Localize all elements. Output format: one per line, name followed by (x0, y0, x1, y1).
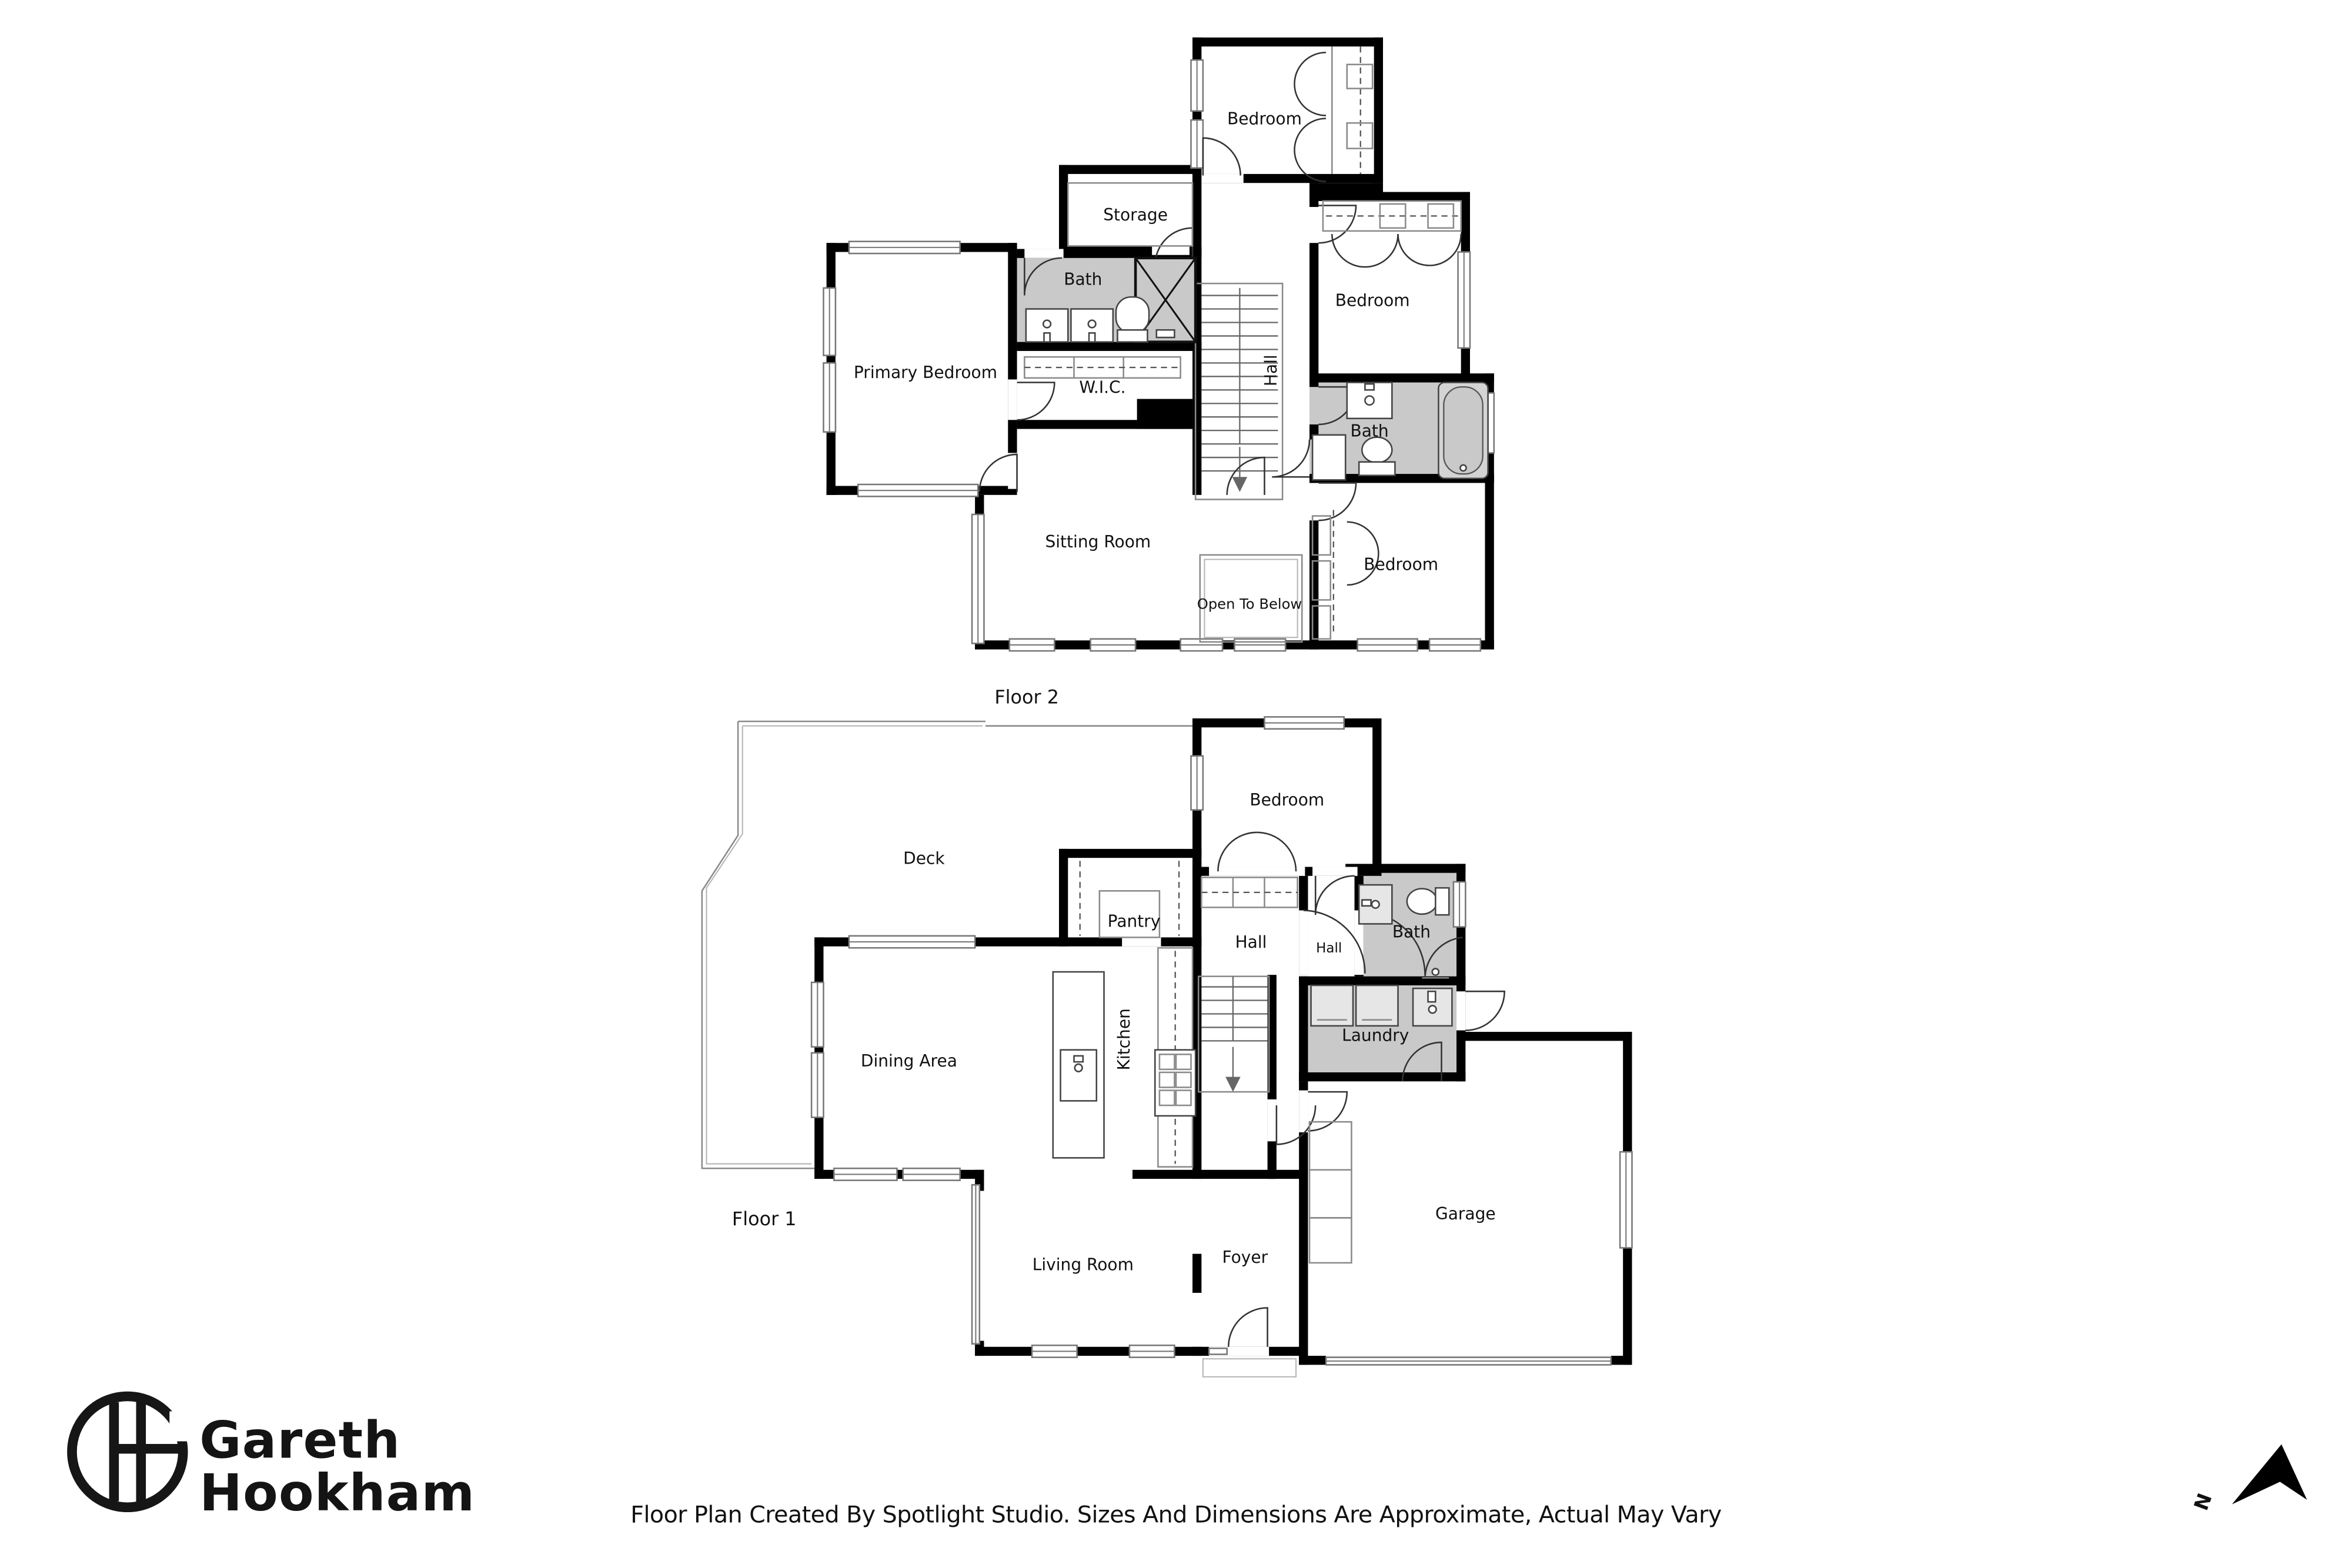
floor1-plan: Deck Bedroom Pantry Hall Hall Bath Dinin… (702, 717, 1632, 1376)
floor1-staircase (1198, 977, 1269, 1092)
kitchen-island (1053, 972, 1104, 1158)
north-label: N (2189, 1490, 2216, 1513)
stove-icon (1155, 1050, 1195, 1116)
floor1-label-hall-small: Hall (1316, 941, 1342, 956)
floor1-label-living-room: Living Room (1033, 1255, 1134, 1275)
floor1-label-kitchen: Kitchen (1114, 1008, 1134, 1070)
floor1-title: Floor 1 (732, 1208, 797, 1230)
floor1-walls (814, 718, 1632, 1365)
branding-logo: Gareth Hookham (72, 1396, 475, 1523)
floor2-label-bedroom-right: Bedroom (1335, 290, 1410, 310)
floor1-label-laundry: Laundry (1342, 1025, 1409, 1045)
floor2-label-primary-bedroom: Primary Bedroom (854, 363, 997, 382)
disclaimer-text: Floor Plan Created By Spotlight Studio. … (630, 1501, 1722, 1528)
toilet-icon (1116, 297, 1149, 342)
floor-plan-scaler: Bedroom Storage Bath Primary Bedroom W.I… (0, 0, 2352, 1568)
floor1-label-bedroom: Bedroom (1249, 790, 1324, 810)
washer-dryer-icons (1311, 985, 1452, 1026)
floor1-label-hall: Hall (1235, 932, 1267, 952)
floor2-label-bedroom-lower: Bedroom (1364, 554, 1438, 574)
brand-name-line1: Gareth (199, 1411, 400, 1470)
floor2-label-bath-upper: Bath (1064, 270, 1102, 289)
floor2-label-bedroom-top: Bedroom (1227, 109, 1302, 129)
garage-shelves (1309, 1122, 1351, 1263)
closet-shelves-floor1-bedroom (1201, 877, 1297, 907)
floor1-label-dining-area: Dining Area (861, 1051, 957, 1071)
floor-plan-page: Bedroom Storage Bath Primary Bedroom W.I… (0, 0, 2352, 1568)
floor2-label-wic: W.I.C. (1079, 377, 1125, 397)
floor2-label-open-to-below: Open To Below (1197, 596, 1302, 613)
wic-shelves (1024, 357, 1180, 378)
floor1-label-bath: Bath (1392, 922, 1431, 941)
toilet-icon (1407, 888, 1449, 915)
toilet-icon (1359, 437, 1395, 476)
closet-shelves-top-bedroom (1332, 46, 1372, 174)
sink-icon (1347, 383, 1392, 419)
floor1-label-foyer: Foyer (1222, 1248, 1268, 1267)
floor2-label-storage: Storage (1103, 205, 1168, 225)
floor2-label-sitting-room: Sitting Room (1045, 532, 1151, 551)
kitchen-counter (1155, 948, 1195, 1166)
floor-plan-canvas: Bedroom Storage Bath Primary Bedroom W.I… (0, 0, 2352, 1568)
floor1-label-pantry: Pantry (1108, 912, 1161, 931)
sink-icon (1359, 885, 1392, 924)
floor1-label-garage: Garage (1435, 1204, 1496, 1223)
floor2-label-hall: Hall (1261, 355, 1281, 386)
brand-name-line2: Hookham (199, 1463, 475, 1523)
floor2-plan: Bedroom Storage Bath Primary Bedroom W.I… (823, 38, 1494, 708)
floor2-title: Floor 2 (994, 686, 1059, 708)
floor1-label-deck: Deck (903, 848, 945, 868)
north-arrow-icon: N (2189, 1445, 2307, 1514)
gh-monogram-icon (72, 1396, 191, 1507)
bathtub-icon (1438, 383, 1488, 479)
floor2-label-bath-right: Bath (1350, 421, 1388, 440)
